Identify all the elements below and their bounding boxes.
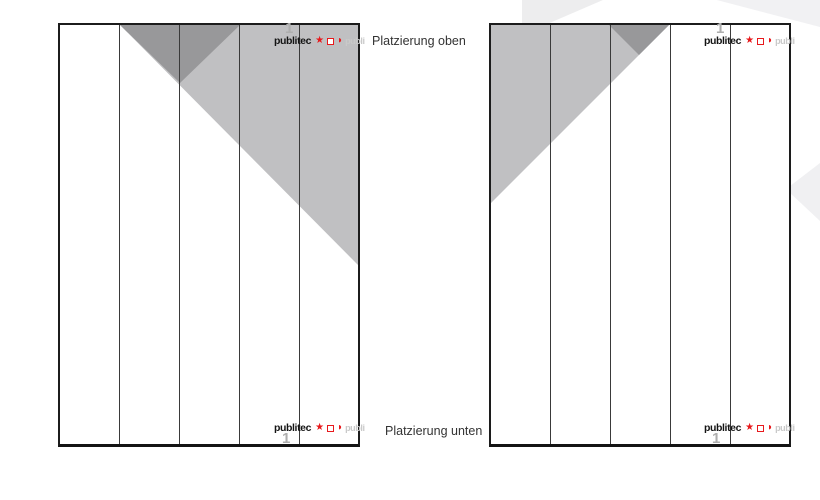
column-divider xyxy=(119,25,120,444)
publitec-logo-ghost-text: publi xyxy=(775,423,795,433)
background-watermark-tip xyxy=(786,163,820,221)
half-circle-icon: ◗ xyxy=(337,36,343,46)
background-watermark-wedge xyxy=(522,0,614,23)
publitec-logo-ghost-text: publi xyxy=(345,36,365,46)
publitec-logo-text: publitec xyxy=(704,423,741,433)
publitec-logo-ghost-text: publi xyxy=(345,423,365,433)
column-marker: 1 xyxy=(716,22,724,36)
star-icon: ★ xyxy=(315,36,324,46)
star-icon: ★ xyxy=(745,36,754,46)
half-circle-icon: ◗ xyxy=(767,36,773,46)
column-divider xyxy=(239,25,240,444)
square-icon xyxy=(327,425,334,432)
square-icon xyxy=(757,425,764,432)
page-schematic-left xyxy=(58,23,360,447)
ad-area-light-triangle xyxy=(491,25,789,444)
star-icon: ★ xyxy=(745,423,754,433)
placement-bottom-label: Platzierung unten xyxy=(385,424,482,438)
column-divider xyxy=(550,25,551,444)
square-icon xyxy=(757,38,764,45)
ad-area-light-triangle xyxy=(60,25,358,444)
column-divider xyxy=(299,25,300,444)
square-icon xyxy=(327,38,334,45)
column-marker: 1 xyxy=(285,22,293,36)
page-left-inner xyxy=(60,25,358,444)
publitec-logo-text: publitec xyxy=(274,423,311,433)
column-marker: 1 xyxy=(282,432,290,446)
page-schematic-right xyxy=(489,23,791,447)
column-divider xyxy=(730,25,731,444)
publitec-logo-ghost-text: publi xyxy=(775,36,795,46)
publitec-logo-text: publitec xyxy=(274,36,311,46)
half-circle-icon: ◗ xyxy=(337,423,343,433)
column-divider xyxy=(670,25,671,444)
placement-top-label: Platzierung oben xyxy=(372,34,466,48)
star-icon: ★ xyxy=(315,423,324,433)
publitec-logo-text: publitec xyxy=(704,36,741,46)
publitec-logo: publitec ★ ◗ publi xyxy=(704,36,795,46)
column-marker: 1 xyxy=(712,432,720,446)
column-divider xyxy=(610,25,611,444)
page-right-inner xyxy=(491,25,789,444)
column-divider xyxy=(179,25,180,444)
half-circle-icon: ◗ xyxy=(767,423,773,433)
publitec-logo: publitec ★ ◗ publi xyxy=(274,36,365,46)
